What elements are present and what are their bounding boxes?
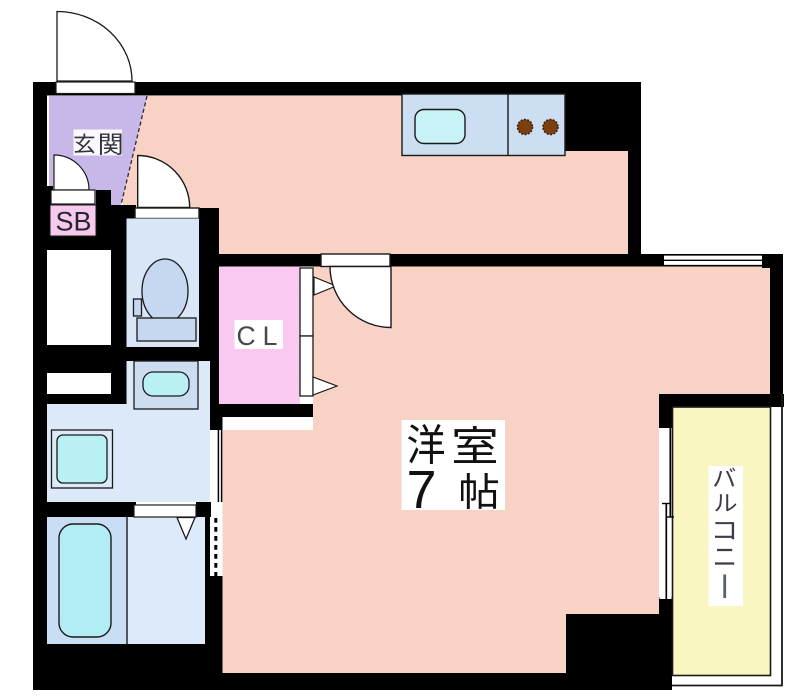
svg-text:SB: SB — [55, 207, 91, 237]
svg-text:CL: CL — [237, 321, 285, 351]
svg-text:7: 7 — [407, 460, 437, 520]
